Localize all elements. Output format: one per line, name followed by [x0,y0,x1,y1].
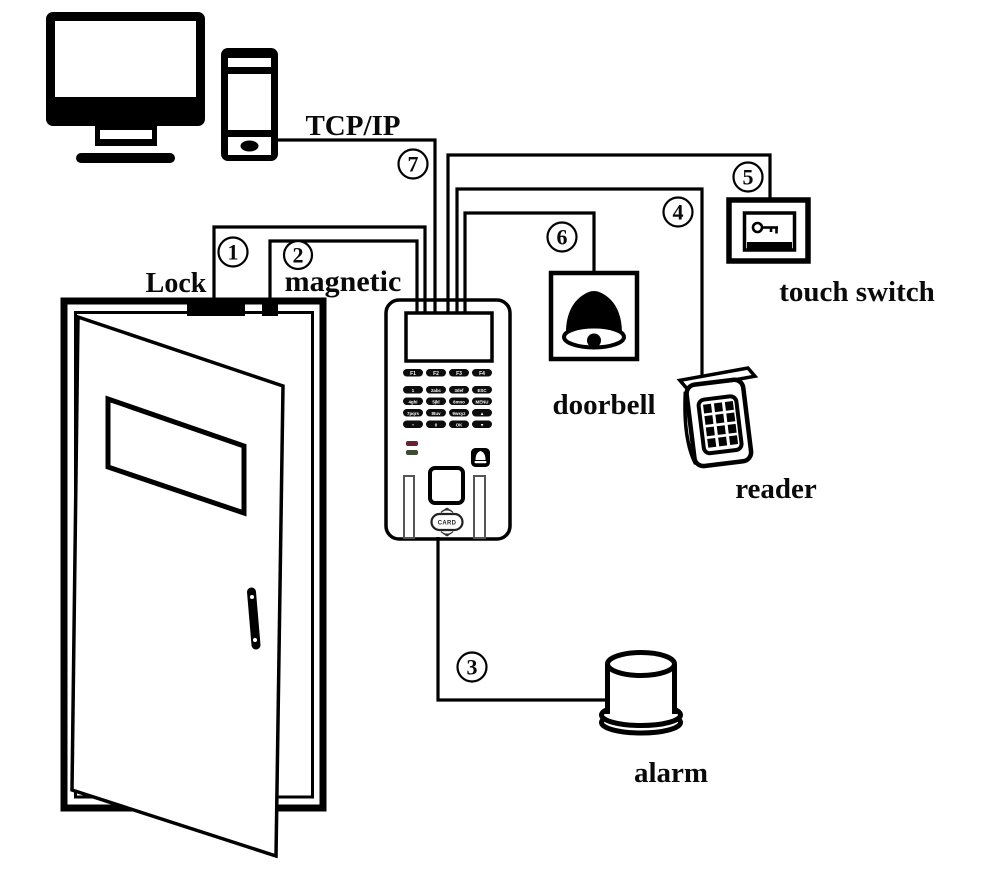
monitor-base [76,153,175,163]
key-7pqrs-label: 7pqrs [407,411,420,416]
terminal-screen [406,313,492,361]
wiring-diagram: F1 F2 F3 F4 1 2abc 3def ESC 4ghi 5jkl 6m… [0,0,1000,878]
key-8tuv-label: 8tuv [431,411,441,416]
touch-switch-bar [747,242,792,250]
key-6mno-label: 6mno [453,399,465,404]
marker-6-label: 6 [557,225,568,250]
magnetic-block [262,302,278,316]
key-f4-label: F4 [479,371,485,377]
tower-panel [228,74,271,130]
door-handle-screw-bottom [253,638,257,642]
key-9wxyz-label: 9wxyz [453,411,467,416]
key-f1-label: F1 [410,371,416,377]
tower-vent [228,58,271,67]
slot-right [474,476,485,538]
bell-button-icon [471,448,490,467]
door-leaf [72,317,283,856]
lock-label: Lock [146,268,207,299]
alarm-top [608,653,675,676]
monitor-neck-notch [100,130,152,139]
marker-1-label: 1 [228,240,239,265]
key-f3-label: F3 [456,371,462,377]
marker-7-label: 7 [408,152,419,177]
led-red [406,441,418,446]
alarm-icon [602,653,681,734]
key-f2-label: F2 [433,371,439,377]
down-arrow-icon: ▼ [480,422,484,427]
doorbell-label: doorbell [552,389,655,421]
key-ok-label: OK [456,422,463,427]
reader-icon [679,367,765,467]
key-3def-label: 3def [454,388,464,393]
tower-button [241,141,259,152]
led-green [406,450,418,455]
up-arrow-icon: ▲ [480,411,484,416]
key-4ghi-label: 4ghi [408,399,417,404]
marker-3-label: 3 [467,655,478,680]
diagram-canvas: F1 F2 F3 F4 1 2abc 3def ESC 4ghi 5jkl 6m… [0,0,1000,878]
reader-label: reader [735,473,817,505]
tcpip-label: TCP/IP [305,110,400,142]
key-menu-label: MENU [476,399,489,404]
doorbell-bell-clapper [587,334,601,348]
key-2abc-label: 2abc [431,388,442,393]
slot-left [404,476,414,538]
computer-icon [46,12,278,163]
key-5jkl-label: 5jkl [432,399,439,404]
touch-switch-box [729,200,808,261]
marker-2-label: 2 [293,243,304,268]
fingerprint-window [430,468,463,503]
marker-5-label: 5 [743,165,754,190]
door-handle-screw-top [250,595,254,599]
monitor-screen [55,21,196,97]
alarm-label: alarm [634,757,708,789]
key-esc-label: ESC [477,388,487,393]
card-label: CARD [438,521,457,527]
door [64,301,323,856]
magnetic-label: magnetic [285,265,402,298]
lock-block [187,302,245,316]
marker-4-label: 4 [673,200,684,225]
touch-switch-label: touch switch [779,276,934,308]
doorbell-box [551,273,637,359]
door-handle [252,592,257,645]
